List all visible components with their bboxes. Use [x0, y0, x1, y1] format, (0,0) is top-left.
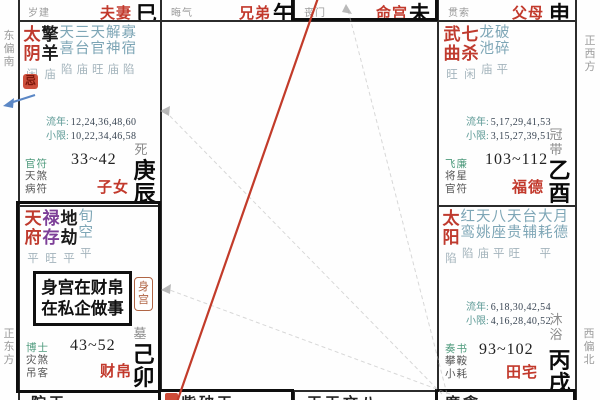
- life-axis-red-line: [177, 0, 318, 400]
- decade-age-range: 33~42: [71, 151, 117, 169]
- branch-si: 巳: [136, 0, 157, 20]
- trine-dashed-lines: [166, 10, 450, 394]
- hai-palace-highlight-box: [435, 389, 576, 400]
- grid-line: [575, 0, 577, 400]
- branch-wu: 午: [273, 0, 292, 20]
- yearly-limits: 流年:5,17,29,41,53 小限:3,15,27,39,51: [466, 116, 551, 144]
- branch-yiyou: 乙酉: [548, 160, 571, 205]
- palace-name-siblings: 兄弟: [239, 2, 271, 20]
- palace-children-chen[interactable]: 太阴闲 擎羊庙 天喜陷 三台庙 天官旺 解神庙 寡宿陷 忌 流年:12,24,3…: [19, 21, 159, 205]
- palace-cell-zi-clipped[interactable]: 天天文八: [295, 392, 436, 400]
- yearly-limits: 流年:12,24,36,48,60 小限:10,22,34,46,58: [46, 116, 136, 144]
- direction-label-due-east: 正东方: [3, 328, 15, 368]
- star-wuqu: 武曲: [443, 26, 461, 63]
- decade-age-range: 103~112: [485, 151, 548, 169]
- clipped-star-row: 陀天: [31, 392, 67, 400]
- palace-name-fortune: 福德: [512, 176, 544, 197]
- yearly-limits: 流年:6,18,30,42,54 小限:4,16,28,40,52: [466, 301, 551, 329]
- chou-palace-highlight-box: [158, 389, 294, 400]
- palace-property-xu[interactable]: 太阳陷 红鸾陷 天姚庙 八座平 天贵旺 台辅 大耗平 月德 流年:6,18,30…: [439, 206, 574, 390]
- palace-cell-spouse-si[interactable]: 岁建 夫妻 巳: [19, 0, 159, 20]
- star-jieshen: 解神: [106, 26, 122, 58]
- minor-gods: 官符 天煞 病符: [25, 159, 48, 197]
- star-dahao: 大耗: [538, 210, 554, 242]
- life-stage-guandai: 冠带: [549, 128, 563, 158]
- star-taifu: 台辅: [522, 210, 538, 242]
- star-taiyang: 太阳: [442, 210, 460, 247]
- palace-fortune-you[interactable]: 武曲旺 七杀闲 龙池庙 破碎平 流年:5,17,29,41,53 小限:3,15…: [439, 21, 574, 205]
- star-taiyin: 太阴: [23, 26, 41, 63]
- star-tianguan: 天官: [90, 26, 106, 58]
- star-row: 武曲旺 七杀闲 龙池庙 破碎平: [443, 26, 510, 79]
- life-stage-si: 死: [134, 143, 148, 158]
- star-longchi: 龙池: [479, 26, 495, 58]
- palace-name-spouse: 夫妻: [100, 2, 132, 20]
- palace-name-property: 田宅: [506, 361, 538, 382]
- life-stage-muyu: 沐浴: [549, 313, 563, 343]
- direction-label-due-west: 正西方: [584, 35, 596, 75]
- star-bazuo: 八座: [491, 210, 507, 242]
- minor-gods: 奏书 攀鞍 小耗: [445, 344, 468, 382]
- palace-name-parents: 父母: [512, 2, 544, 20]
- star-tiangui: 天贵: [507, 210, 523, 242]
- hua-ji-marker: 忌: [23, 74, 38, 89]
- star-santai: 三台: [75, 26, 91, 58]
- direction-label-west-by-north: 西偏北: [583, 328, 595, 368]
- branch-bingxu: 丙戌: [548, 350, 571, 390]
- branch-gengchen: 庚辰: [133, 160, 156, 205]
- palace-cell-siblings-wu[interactable]: 晦气 兄弟 午: [162, 0, 292, 20]
- palace-cell-yin-clipped[interactable]: 陀天: [19, 392, 159, 400]
- direction-label-east-by-south: 东偏南: [3, 30, 15, 70]
- body-palace-highlight-box: [16, 201, 161, 393]
- year-god-label: 贯索: [448, 4, 470, 19]
- star-qingyang: 擎羊: [41, 26, 59, 63]
- star-yuede: 月德: [553, 210, 569, 242]
- star-hongluan: 红鸾: [460, 210, 476, 242]
- minor-gods: 飞廉 将星 官符: [445, 159, 468, 197]
- palace-cell-parents-shen[interactable]: 贯索 父母 申: [439, 0, 574, 20]
- clipped-star-row: 天天文八: [307, 392, 379, 400]
- star-qisha: 七杀: [461, 26, 479, 63]
- branch-shen: 申: [549, 0, 570, 20]
- star-posui: 破碎: [495, 26, 511, 58]
- star-tianxi: 天喜: [59, 26, 75, 58]
- palace-name-children: 子女: [97, 176, 129, 197]
- year-god-label: 岁建: [28, 4, 50, 19]
- year-god-label: 晦气: [171, 4, 193, 19]
- life-palace-highlight-box: [291, 0, 438, 21]
- star-guasu: 寡宿: [121, 26, 137, 58]
- star-row: 太阳陷 红鸾陷 天姚庙 八座平 天贵旺 台辅 大耗平 月德: [442, 210, 569, 263]
- ziwei-astrology-chart: 东偏南 正东方 正西方 西偏北 岁建 夫妻 巳 晦气 兄弟 午 丧门 命宫 未 …: [0, 0, 600, 400]
- star-row: 太阴闲 擎羊庙 天喜陷 三台庙 天官旺 解神庙 寡宿陷: [23, 26, 137, 79]
- decade-age-range: 93~102: [479, 341, 534, 359]
- star-tianyao: 天姚: [476, 210, 492, 242]
- trine-arrowheads: [160, 4, 352, 294]
